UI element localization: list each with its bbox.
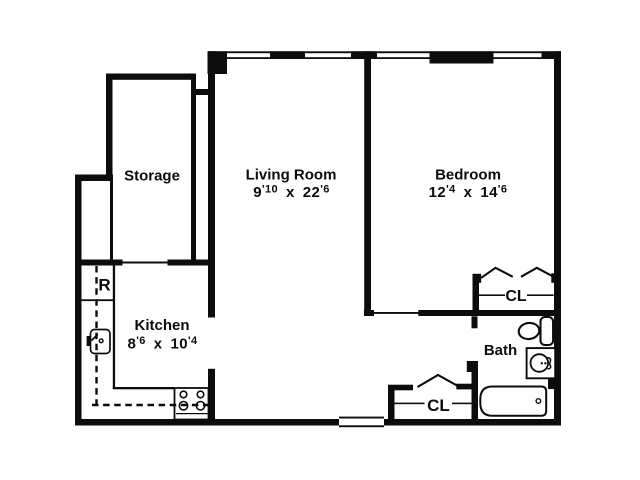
svg-text:Bedroom: Bedroom xyxy=(435,167,501,184)
svg-text:CL: CL xyxy=(505,288,527,305)
svg-text:Kitchen: Kitchen xyxy=(134,317,189,334)
svg-text:Bath: Bath xyxy=(484,342,517,359)
svg-text:12'4 x 14'6: 12'4 x 14'6 xyxy=(429,184,508,202)
svg-text:CL: CL xyxy=(427,396,450,415)
svg-text:Storage: Storage xyxy=(124,168,180,185)
svg-text:R: R xyxy=(98,276,110,295)
svg-text:Living Room: Living Room xyxy=(246,167,337,184)
